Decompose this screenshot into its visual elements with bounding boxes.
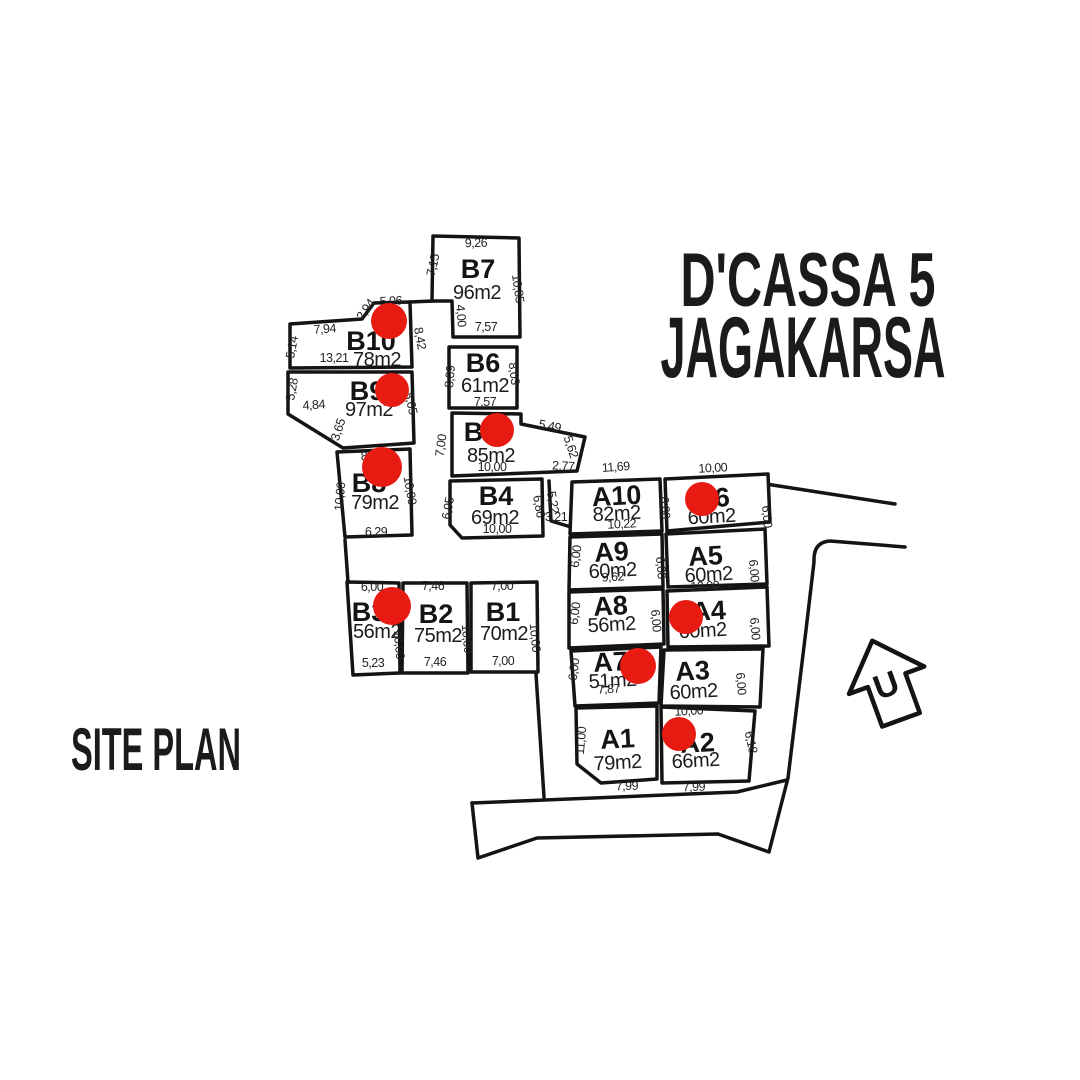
dimension-label: 6,00 — [733, 672, 749, 696]
dimension-label: 6,00 — [747, 617, 763, 641]
dimension-label: 7,99 — [682, 780, 705, 795]
dimension-label: 10,00 — [478, 460, 507, 474]
lot-area-a3: 60m2 — [669, 680, 718, 705]
dimension-label: 7,00 — [491, 579, 514, 593]
lot-area-b8: 79m2 — [351, 492, 399, 514]
dimension-label: 10,00 — [459, 624, 476, 654]
dimension-label: 7,00 — [433, 433, 450, 458]
dimension-label: 10,00 — [391, 630, 408, 660]
dimension-label: 3,21 — [545, 510, 568, 524]
dimension-label: 9,62 — [601, 569, 625, 584]
dimension-label: 10,00 — [674, 703, 704, 719]
north-arrow: U — [835, 627, 939, 733]
dimension-label: 7,00 — [492, 654, 515, 668]
dimension-label: 6,00 — [567, 601, 584, 625]
dimension-label: 7,94 — [313, 321, 337, 337]
site-plan-page: D'CASSA 5 JAGAKARSA SITE PLAN U B796m29,… — [0, 0, 1080, 1080]
dimension-label: 8,42 — [411, 326, 429, 351]
dimension-label: 6,00 — [759, 505, 775, 529]
lot-name-b6: B6 — [466, 348, 501, 378]
lot-name-a1: A1 — [600, 723, 636, 755]
sold-dot-a2 — [662, 717, 696, 751]
dimension-label: 6,00 — [746, 559, 762, 583]
lot-area-a2: 66m2 — [671, 749, 720, 774]
dimension-label: 10,00 — [527, 623, 544, 653]
dimension-label: 2,77 — [552, 458, 576, 473]
dimension-label: 7,57 — [475, 320, 498, 334]
dimension-label: 7,87 — [597, 681, 621, 696]
dimension-label: 11,00 — [573, 726, 589, 756]
dimension-label: 4,84 — [302, 397, 326, 413]
dimension-label: 8,03 — [506, 362, 523, 386]
sold-dot-a7 — [620, 648, 656, 684]
dimension-label: 11,69 — [601, 459, 630, 475]
dimension-label: 6,00 — [566, 657, 583, 681]
road-boundary-line — [345, 540, 348, 582]
sold-dot-b3 — [373, 587, 411, 625]
dimension-label: 6,00 — [568, 544, 585, 568]
dimension-label: 4,00 — [453, 304, 469, 328]
dimension-label: 10,22 — [607, 516, 637, 532]
lot-name-b7: B7 — [461, 254, 496, 284]
road-boundary-line — [410, 301, 433, 302]
project-title-line2: JAGAKARSA — [661, 300, 946, 396]
dimension-label: 6,29 — [365, 525, 388, 539]
dimension-label: 7,57 — [474, 395, 497, 409]
sold-dot-a4 — [669, 600, 703, 634]
dimension-label: 10,00 — [698, 460, 728, 476]
dimension-label: 13,21 — [320, 351, 349, 365]
dimension-label: 6,00 — [648, 609, 664, 633]
sold-dot-b9 — [375, 373, 409, 407]
site-plan-caption: SITE PLAN — [71, 716, 241, 783]
lot-area-b2: 75m2 — [414, 625, 462, 647]
sold-dot-b8 — [362, 447, 402, 487]
dimension-label: 7,99 — [615, 779, 638, 794]
road-boundary-line — [766, 484, 895, 504]
lot-area-b6: 61m2 — [461, 375, 509, 397]
lot-area-a8: 56m2 — [587, 613, 636, 638]
road-boundary-line — [536, 674, 544, 797]
site-plan-drawing: D'CASSA 5 JAGAKARSA SITE PLAN U B796m29,… — [0, 0, 1080, 1080]
sold-dot-b5 — [480, 413, 514, 447]
dimension-label: 9,26 — [465, 236, 488, 250]
lot-area-b10: 78m2 — [353, 349, 401, 371]
dimension-label: 10,00 — [332, 481, 349, 511]
lot-area-a1: 79m2 — [593, 751, 642, 776]
dimension-label: 10,00 — [483, 522, 512, 536]
dimension-label: 10,00 — [690, 578, 720, 594]
dimension-label: 7,46 — [422, 579, 445, 593]
dimension-label: 7,46 — [424, 655, 447, 669]
sold-dot-b10 — [371, 303, 407, 339]
dimension-label: 8,09 — [442, 364, 458, 388]
sold-dot-a6 — [685, 482, 719, 516]
lot-area-b7: 96m2 — [453, 282, 501, 304]
dimension-label: 6,00 — [653, 556, 669, 580]
dimension-label: 5,23 — [362, 656, 385, 670]
dimension-label: 6,00 — [657, 496, 673, 520]
lot-area-b1: 70m2 — [480, 623, 528, 645]
